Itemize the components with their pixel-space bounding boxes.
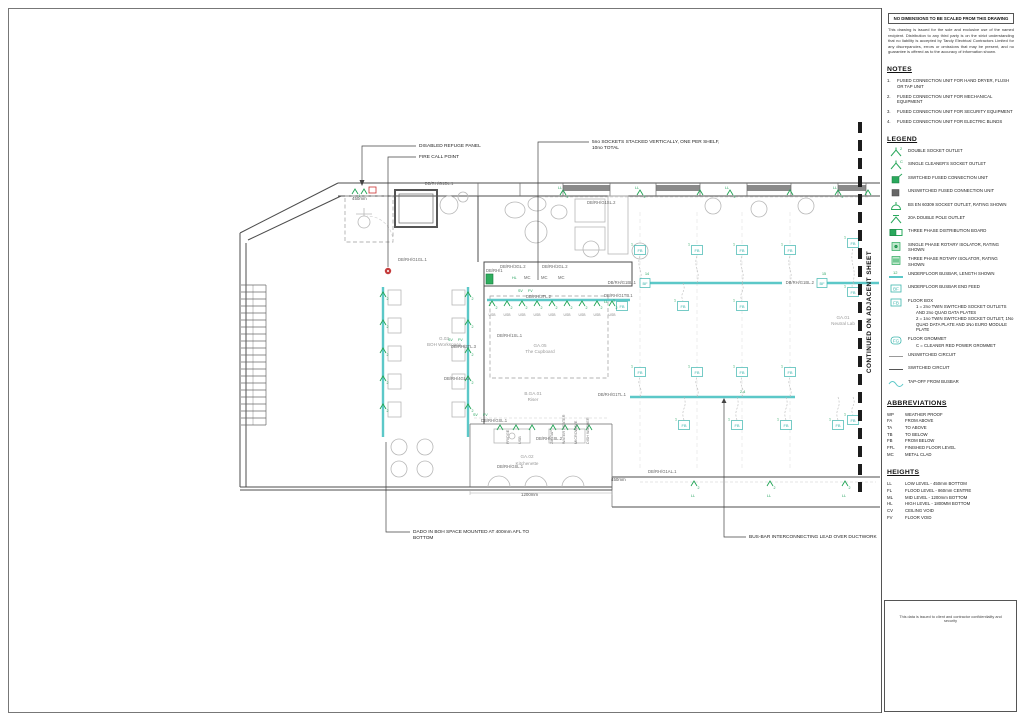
legend-label-group: UNDERFLOOR BUSBAR, LENGTH SHOWN (908, 271, 1015, 277)
height-item-code: CV (887, 508, 905, 515)
svg-text:2: 2 (496, 306, 498, 310)
svg-text:1: 1 (674, 299, 676, 303)
plan-annotation: BOH Workspace (427, 342, 462, 347)
svg-text:FB: FB (783, 423, 788, 428)
svg-text:2: 2 (698, 486, 700, 490)
svg-text:FB: FB (739, 248, 744, 253)
abbreviation-item-code: WP (887, 412, 905, 419)
legend-label: DOUBLE SOCKET OUTLET (908, 148, 963, 153)
legend-list: 2DOUBLE SOCKET OUTLETCSINGLE CLEANER'S S… (887, 148, 1015, 389)
socket-symbol: 2 (504, 301, 513, 310)
plan-annotation: DB/RH/G1TL.1 (598, 392, 627, 397)
plan-annotation: DISH WASHER (586, 417, 590, 444)
note-number: 3. (887, 109, 894, 115)
legend-item: THREE PHASE ROTARY ISOLATOR, RATING SHOW… (887, 256, 1015, 267)
legend-label: SINGLE CLEANER'S SOCKET OUTLET (908, 161, 986, 166)
legend-sub-note: C = CLEANER RED POWER GROMMET (916, 343, 1015, 349)
callout-leaders (360, 142, 747, 537)
cleaners-socket-outlet-icon: C (887, 161, 904, 171)
plan-annotation: SV (473, 413, 478, 417)
abbreviations-heading: ABBREVIATIONS (887, 400, 1015, 407)
svg-text:FB: FB (694, 370, 699, 375)
plan-annotation: USB (609, 313, 617, 317)
svg-text:1: 1 (631, 243, 633, 247)
legend-item: FBFLOOR BOX1 = 2no TWIN SWITCHED SOCKET … (887, 298, 1015, 333)
floor-box-symbol: FB1 (777, 397, 792, 430)
plan-annotation: BOTTOM (413, 535, 433, 541)
svg-text:FB: FB (734, 423, 739, 428)
legend-label-group: UNSWITCHED CIRCUIT (908, 352, 1015, 358)
sp-isolator-icon (887, 242, 904, 252)
svg-text:2: 2 (842, 195, 844, 199)
svg-text:1: 1 (675, 418, 677, 422)
plan-annotation: FIRE CALL POINT (419, 154, 459, 160)
svg-text:1: 1 (733, 243, 735, 247)
plan-annotation: 5no SOCKETS STACKED VERTICALLY, ONE PER … (592, 139, 719, 145)
floor-box-symbol: FB1 (733, 283, 748, 311)
unswitched-fcu-icon (887, 188, 904, 198)
plan-annotation: Neutral Lab (831, 321, 855, 326)
abbreviation-item-code: TB (887, 432, 905, 439)
plan-annotation: MC (524, 275, 531, 280)
plan-annotation: USB (594, 313, 602, 317)
plan-annotation: DB/RH/3GL.2 (500, 264, 526, 269)
notes-heading: NOTES (887, 66, 1015, 73)
svg-text:2: 2 (556, 306, 558, 310)
note-text: FUSED CONNECTION UNIT FOR MECHANICAL EQU… (897, 94, 1015, 105)
svg-text:FB: FB (619, 304, 624, 309)
plan-annotation: HL (512, 276, 517, 280)
legend-label: UNSWITCHED FUSED CONNECTION UNIT (908, 188, 994, 193)
plan-annotation: LL (767, 494, 771, 498)
plan-annotation: 450mm (611, 477, 626, 482)
floor-box-symbol: FB1 (631, 365, 646, 398)
switched-circuit-icon (887, 365, 904, 375)
busbar-end-feed-symbol: BF (640, 279, 650, 288)
plan-annotation: FRIDGE (506, 429, 510, 444)
legend-label-group: SWITCHED CIRCUIT (908, 365, 1015, 371)
svg-text:2: 2 (472, 381, 474, 385)
legend-label-group: SINGLE CLEANER'S SOCKET OUTLET (908, 161, 1015, 167)
note-number: 2. (887, 94, 894, 105)
svg-text:1: 1 (829, 418, 831, 422)
plan-annotation: LL (635, 186, 639, 190)
floor-box-symbol: FB1 (844, 397, 859, 425)
svg-text:FB: FB (893, 300, 899, 305)
svg-text:FB: FB (680, 304, 685, 309)
plan-annotation: DB/RH/G1TB.1 (604, 293, 633, 298)
floor-box-symbol: FB1 (631, 243, 646, 284)
note-number: 4. (887, 119, 894, 125)
svg-text:FG: FG (892, 339, 899, 344)
floor-box-icon: FB (887, 298, 904, 308)
legend-label: SINGLE PHASE ROTARY ISOLATOR, RATING SHO… (908, 242, 999, 253)
legend-label-group: THREE PHASE ROTARY ISOLATOR, RATING SHOW… (908, 256, 1015, 267)
svg-text:2: 2 (511, 306, 513, 310)
legend-label-group: FLOOR GROMMETC = CLEANER RED POWER GROMM… (908, 336, 1015, 348)
abbreviation-item-meaning: METAL CLAD (905, 452, 1015, 459)
legend-heading: LEGEND (887, 136, 1015, 143)
svg-text:1: 1 (688, 365, 690, 369)
legend-label-group: THREE PHASE DISTRIBUTION BOARD (908, 228, 1015, 234)
svg-text:2: 2 (387, 353, 389, 357)
plan-annotation: GA.01 (836, 315, 849, 320)
legend-label: 20A DOUBLE POLE OUTLET (908, 215, 965, 220)
floor-box-symbol: FB1 (781, 243, 796, 284)
socket-symbol: 2 (380, 376, 389, 385)
plan-annotation: 15 (822, 272, 826, 276)
plan-annotation: USB (519, 313, 527, 317)
disclaimer-body: This drawing is issued for the sole and … (888, 27, 1014, 55)
plan-annotation: FV (528, 289, 533, 293)
plan-annotation: LL (604, 300, 608, 304)
floor-box-symbol: FB1 (733, 243, 748, 284)
abbreviation-item: FBFROM BELOW (887, 438, 1015, 445)
abbreviation-item-code: FB (887, 438, 905, 445)
tap-off-icon (887, 379, 904, 389)
svg-text:1: 1 (844, 413, 846, 417)
legend-label: TAP-OFF FROM BUSBAR (908, 379, 959, 384)
socket-symbol: 2 (465, 292, 474, 301)
tp-isolator-icon (887, 256, 904, 266)
svg-text:2: 2 (644, 195, 646, 199)
legend-item: FGFLOOR GROMMETC = CLEANER RED POWER GRO… (887, 336, 1015, 348)
legend-label: THREE PHASE DISTRIBUTION BOARD (908, 228, 986, 233)
note-text: FUSED CONNECTION UNIT FOR SECURITY EQUIP… (897, 109, 1013, 115)
legend-label: UNDERFLOOR BUSBAR, LENGTH SHOWN (908, 271, 994, 276)
plan-annotation: DB/RH/1SL.1 (497, 333, 523, 338)
plan-annotation: DB/RH/4GL.2 (444, 376, 470, 381)
legend-item: BFUNDERFLOOR BUSBAR END FEED (887, 284, 1015, 294)
bs-en-socket-icon (887, 202, 904, 212)
height-item-code: ML (887, 495, 905, 502)
distribution-board-symbol (486, 274, 493, 284)
svg-text:1: 1 (613, 299, 615, 303)
height-item-meaning: MID LEVEL - 1200mm BOTTOM (905, 495, 1015, 502)
height-item-code: FL (887, 488, 905, 495)
svg-text:1: 1 (733, 365, 735, 369)
note-text: FUSED CONNECTION UNIT FOR ELECTRIC BLIND… (897, 119, 1002, 125)
height-item-code: HL (887, 501, 905, 508)
legend-label: SWITCHED FUSED CONNECTION UNIT (908, 175, 988, 180)
plan-annotation: DB/RH/G1AL.1 (648, 469, 677, 474)
building-walls (240, 183, 880, 507)
abbreviation-item-meaning: FROM ABOVE (905, 418, 1015, 425)
svg-text:1: 1 (733, 299, 735, 303)
socket-symbol: 2 (767, 481, 776, 490)
svg-text:2: 2 (586, 306, 588, 310)
plan-annotation: MICROWAVE (574, 420, 578, 444)
legend-label: UNSWITCHED CIRCUIT (908, 352, 956, 357)
switched-fcu-icon (887, 175, 904, 185)
legend-label: FLOOR GROMMET (908, 336, 946, 341)
socket-symbol: 2 (380, 404, 389, 413)
svg-text:12: 12 (893, 270, 898, 275)
floor-box-symbol: FB1 (829, 397, 844, 430)
socket-symbol: 2 (564, 301, 573, 310)
socket-symbols: 222212222222222222222222222 (352, 189, 871, 490)
notes-list: 1.FUSED CONNECTION UNIT FOR HAND DRYER, … (887, 78, 1015, 125)
plan-annotation: USB (534, 313, 542, 317)
plan-annotation: DB/RH/G1DL.1 (425, 181, 454, 186)
socket-symbol: 2 (835, 190, 844, 199)
socket-symbol: 2 (727, 190, 736, 199)
plan-annotation: LL (558, 186, 562, 190)
svg-text:1: 1 (844, 236, 846, 240)
note-number: 1. (887, 78, 894, 89)
legend-item: UNSWITCHED CIRCUIT (887, 352, 1015, 362)
plan-annotation: SV (518, 289, 523, 293)
plan-annotation: GA.05 (533, 343, 546, 348)
note-item: 4.FUSED CONNECTION UNIT FOR ELECTRIC BLI… (887, 119, 1015, 125)
abbreviation-item: TATO ABOVE (887, 425, 1015, 432)
svg-text:2: 2 (601, 306, 603, 310)
legend-label-group: UNDERFLOOR BUSBAR END FEED (908, 284, 1015, 290)
height-item: LLLOW LEVEL - 450mm BOTTOM (887, 481, 1015, 488)
svg-text:BF: BF (819, 281, 825, 286)
note-item: 1.FUSED CONNECTION UNIT FOR HAND DRYER, … (887, 78, 1015, 89)
abbreviation-item-meaning: TO ABOVE (905, 425, 1015, 432)
svg-text:1: 1 (781, 365, 783, 369)
legend-item: SWITCHED FUSED CONNECTION UNIT (887, 175, 1015, 185)
svg-text:1: 1 (781, 243, 783, 247)
circuit-lines (474, 197, 876, 482)
note-item: 2.FUSED CONNECTION UNIT FOR MECHANICAL E… (887, 94, 1015, 105)
svg-text:2: 2 (541, 306, 543, 310)
note-item: 3.FUSED CONNECTION UNIT FOR SECURITY EQU… (887, 109, 1015, 115)
floor-box-symbol: FB1 (781, 365, 796, 398)
continued-label: CONTINUED ON ADJACENT SHEET (866, 231, 873, 393)
legend-item: TAP-OFF FROM BUSBAR (887, 379, 1015, 389)
svg-text:FB: FB (694, 248, 699, 253)
plan-annotation: USB (518, 436, 522, 444)
abbreviation-item-meaning: TO BELOW (905, 432, 1015, 439)
legend-item: 20A DOUBLE POLE OUTLET (887, 215, 1015, 225)
plan-annotation: USB (504, 313, 512, 317)
plan-annotation: DB/RH/G1SL.2 (587, 200, 616, 205)
svg-text:2: 2 (567, 195, 569, 199)
legend-label-group: SWITCHED FUSED CONNECTION UNIT (908, 175, 1015, 181)
svg-text:2: 2 (571, 306, 573, 310)
floor-box-symbol: FB1 (688, 243, 703, 284)
plan-annotation: USB (489, 313, 497, 317)
legend-label: THREE PHASE ROTARY ISOLATOR, RATING SHOW… (908, 256, 998, 267)
busbar-end-feed-icon: BF (887, 284, 904, 294)
abbreviation-item: FFLFINISHED FLOOR LEVEL (887, 445, 1015, 452)
plan-annotation: BUS-BAR INTERCONNECTING LEAD OVER DUCTWO… (749, 534, 877, 540)
legend-sub-note: 2 = 1no TWIN SWITCHED SOCKET OUTLET, 1No… (916, 316, 1015, 333)
socket-symbol: 2 (380, 320, 389, 329)
svg-text:BF: BF (642, 281, 648, 286)
legend-label-group: 20A DOUBLE POLE OUTLET (908, 215, 1015, 221)
floor-grommet-icon: FG (887, 336, 904, 346)
legend-item: CSINGLE CLEANER'S SOCKET OUTLET (887, 161, 1015, 171)
socket-symbol: 2 (842, 481, 851, 490)
svg-text:2: 2 (472, 353, 474, 357)
abbreviation-item: MCMETAL CLAD (887, 452, 1015, 459)
svg-text:2: 2 (849, 486, 851, 490)
abbreviation-item: TBTO BELOW (887, 432, 1015, 439)
plan-annotation: DB/RH/G1BL.1 (608, 280, 637, 285)
busbar-icon: 12 (887, 271, 904, 281)
socket-symbol: 2 (465, 320, 474, 329)
socket-symbol: 2 (380, 348, 389, 357)
floor-box-symbol: FB1 (675, 397, 690, 430)
socket-symbol: 2 (549, 301, 558, 310)
plan-annotation: LL (833, 186, 837, 190)
socket-symbol: 2 (579, 301, 588, 310)
plan-annotation: The Cupboard (525, 349, 555, 354)
svg-text:1: 1 (728, 418, 730, 422)
socket-symbol: 2 (637, 190, 646, 199)
height-item: FVFLOOR VOID (887, 515, 1015, 522)
height-item-code: FV (887, 515, 905, 522)
svg-text:FB: FB (787, 370, 792, 375)
legend-label-group: TAP-OFF FROM BUSBAR (908, 379, 1015, 385)
socket-symbol: 2 (691, 481, 700, 490)
staircase (241, 285, 266, 425)
abbreviation-item: WPWEATHER PROOF (887, 412, 1015, 419)
svg-text:1: 1 (844, 285, 846, 289)
legend-label-group: DOUBLE SOCKET OUTLET (908, 148, 1015, 154)
plan-annotation: DB/RH/1 (486, 268, 503, 273)
socket-symbol: 2 (594, 301, 603, 310)
height-item-meaning: CEILING VOID (905, 508, 1015, 515)
plan-annotation: DADO IN BOH SPACE MOUNTED AT 400mm AFL T… (413, 529, 529, 535)
note-text: FUSED CONNECTION UNIT FOR HAND DRYER, FL… (897, 78, 1015, 89)
svg-text:FB: FB (787, 248, 792, 253)
plan-annotation: DB/RH/GSL.1 (481, 418, 508, 423)
height-item: CVCEILING VOID (887, 508, 1015, 515)
legend-item: 2DOUBLE SOCKET OUTLET (887, 148, 1015, 158)
legend-item: SWITCHED CIRCUIT (887, 365, 1015, 375)
height-item-code: LL (887, 481, 905, 488)
floor-box-symbol: FB1 (674, 283, 689, 311)
legend-item: THREE PHASE DISTRIBUTION BOARD (887, 228, 1015, 238)
height-item-meaning: FLOOR VOID (905, 515, 1015, 522)
svg-text:2: 2 (734, 195, 736, 199)
svg-text:FB: FB (835, 423, 840, 428)
disclaimer-title: NO DIMENSIONS TO BE SCALED FROM THIS DRA… (888, 13, 1014, 24)
plan-annotations: 450mmDB/RH/G1DL.1DB/RH/G1SL.2DB/RH/G1GL.… (352, 139, 877, 541)
plan-annotation: DB/RH/3TL.2 (526, 294, 552, 299)
height-item-meaning: LOW LEVEL - 450mm BOTTOM (905, 481, 1015, 488)
floor-box-symbol: FB1 (728, 397, 743, 430)
svg-text:1: 1 (688, 243, 690, 247)
svg-text:2: 2 (387, 297, 389, 301)
legend-item: 12UNDERFLOOR BUSBAR, LENGTH SHOWN (887, 271, 1015, 281)
unswitched-circuit-icon (887, 352, 904, 362)
socket-symbol (361, 189, 367, 194)
socket-symbol: 2 (380, 292, 389, 301)
socket-symbol (529, 425, 535, 430)
svg-text:FB: FB (739, 370, 744, 375)
fire-alarm-icon (369, 187, 376, 193)
abbreviations-list: WPWEATHER PROOFFAFROM ABOVETATO ABOVETBT… (887, 412, 1015, 459)
svg-text:2: 2 (616, 306, 618, 310)
plan-annotation: USB (564, 313, 572, 317)
legend-label: UNDERFLOOR BUSBAR END FEED (908, 284, 980, 289)
plan-annotation: ZIP TAP (550, 430, 554, 444)
plan-annotation: G.03 (439, 336, 449, 341)
svg-text:FB: FB (850, 290, 855, 295)
svg-text:1: 1 (631, 365, 633, 369)
svg-text:2: 2 (387, 381, 389, 385)
plan-annotation: DB/RH/G1BL.2 (786, 280, 815, 285)
double-socket-outlet-icon: 2 (887, 148, 904, 158)
plan-annotation: LL (725, 186, 729, 190)
plan-annotation: B.GA.01 (524, 391, 542, 396)
legend-sub-note: 1 = 2no TWIN SWITCHED SOCKET OUTLETS AND… (916, 304, 1015, 315)
svg-text:2: 2 (472, 325, 474, 329)
title-block: This data is issued to client and contra… (884, 600, 1017, 712)
legend-label-group: FLOOR BOX1 = 2no TWIN SWITCHED SOCKET OU… (908, 298, 1015, 333)
plan-annotation: DB/RH/G1GL.1 (398, 257, 428, 262)
svg-text:2: 2 (387, 325, 389, 329)
floor-boxes: FB1FB1FB1FB1FB1FB1FB1FB1FB1FB1FB1FB1FB1F… (613, 236, 859, 430)
abbreviation-item-code: TA (887, 425, 905, 432)
abbreviation-item-code: MC (887, 452, 905, 459)
plan-annotation: MC (541, 275, 548, 280)
socket-symbol: 2 (534, 301, 543, 310)
svg-text:FB: FB (739, 304, 744, 309)
abbreviation-item: FAFROM ABOVE (887, 418, 1015, 425)
plan-annotation: 2-4 (740, 390, 745, 394)
height-item: FLFLOOD LEVEL - 860mm CENTRE (887, 488, 1015, 495)
plan-annotation: USB (579, 313, 587, 317)
fire-call-point-symbol (385, 268, 391, 274)
svg-text:FB: FB (850, 418, 855, 423)
dp-outlet-icon (887, 215, 904, 225)
legend-label-group: BS EN 60309 SOCKET OUTLET, RATING SHOWN (908, 202, 1015, 208)
svg-text:FB: FB (681, 423, 686, 428)
legend-label: SWITCHED CIRCUIT (908, 365, 950, 370)
svg-text:C: C (900, 159, 903, 164)
plan-annotation: 450mm (352, 196, 367, 201)
abbreviation-item-code: FFL (887, 445, 905, 452)
svg-text:FB: FB (637, 248, 642, 253)
abbreviation-item-meaning: FINISHED FLOOR LEVEL (905, 445, 1015, 452)
floor-box-symbol: FB1 (844, 283, 859, 297)
plan-annotation: 10no TOTAL (592, 145, 619, 151)
plan-annotation: MC (558, 275, 565, 280)
heights-heading: HEIGHTS (887, 469, 1015, 476)
floor-box-symbol: FB1 (688, 365, 703, 398)
plan-annotation: 14 (645, 272, 649, 276)
underfloor-busbars (383, 283, 879, 437)
plan-annotation: Kitchenette (516, 461, 539, 466)
abbreviation-item-code: FA (887, 418, 905, 425)
svg-text:2: 2 (472, 297, 474, 301)
svg-text:BF: BF (893, 287, 899, 292)
legend-label-group: SINGLE PHASE ROTARY ISOLATOR, RATING SHO… (908, 242, 1015, 253)
svg-text:2: 2 (900, 146, 903, 151)
plan-annotation: LL (842, 494, 846, 498)
accessible-wc (345, 196, 393, 242)
height-item-meaning: FLOOD LEVEL - 860mm CENTRE (905, 488, 1015, 495)
plan-annotation: 1200mm (521, 492, 538, 497)
height-item: MLMID LEVEL - 1200mm BOTTOM (887, 495, 1015, 502)
socket-symbol: 2 (465, 348, 474, 357)
socket-symbol: 2 (560, 190, 569, 199)
svg-text:2: 2 (387, 409, 389, 413)
svg-text:1: 1 (777, 418, 779, 422)
tp-db-icon (887, 228, 904, 238)
legend-label-group: UNSWITCHED FUSED CONNECTION UNIT (908, 188, 1015, 194)
socket-symbol: 2 (465, 404, 474, 413)
plan-annotation: Riser (528, 397, 539, 402)
floor-box-symbol: FB1 (844, 236, 859, 284)
